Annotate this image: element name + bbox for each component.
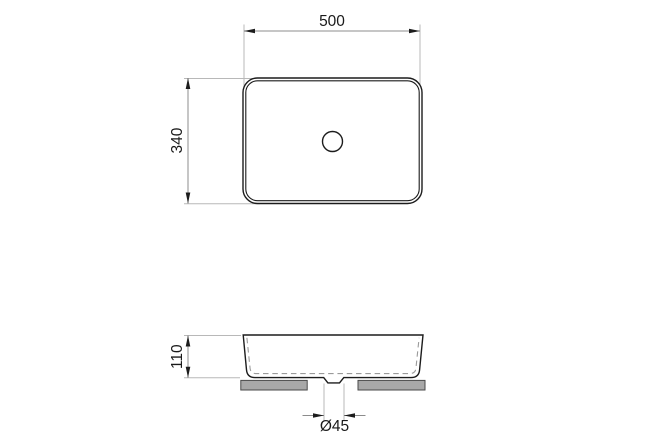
dimension-label-depth: 340 (169, 127, 186, 153)
basin-outer-rim (243, 78, 422, 204)
arrowhead-up-icon (186, 336, 191, 347)
dimension-label-width: 500 (319, 13, 345, 30)
gasket-left (241, 380, 307, 390)
arrowhead-left-icon (244, 29, 255, 34)
front-view: 110 Ø45 (169, 335, 425, 435)
dimension-drain: Ø45 (303, 384, 366, 436)
arrowhead-right-icon (409, 29, 420, 34)
drawing-svg: 500 340 (0, 0, 666, 444)
dimension-label-drain: Ø45 (320, 418, 349, 435)
dimension-label-height: 110 (169, 344, 186, 369)
dimension-height: 110 (169, 336, 241, 378)
basin-side-profile (243, 335, 423, 383)
arrowhead-down-icon (186, 367, 191, 378)
gasket-right (358, 380, 425, 390)
arrowhead-up-icon (186, 78, 191, 89)
arrowhead-down-icon (186, 193, 191, 204)
top-view: 500 340 (169, 13, 422, 204)
technical-drawing-canvas: 500 340 (0, 0, 666, 444)
